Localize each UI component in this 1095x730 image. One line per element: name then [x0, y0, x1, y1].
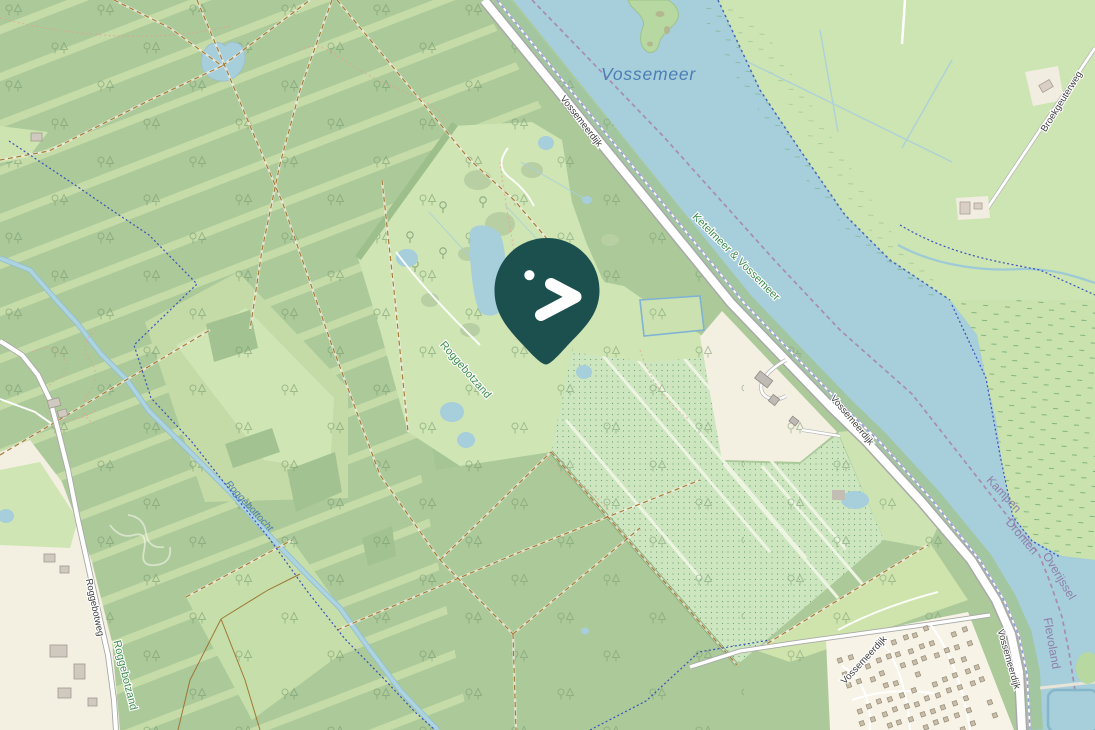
svg-text:Vossemeer: Vossemeer: [601, 64, 696, 84]
